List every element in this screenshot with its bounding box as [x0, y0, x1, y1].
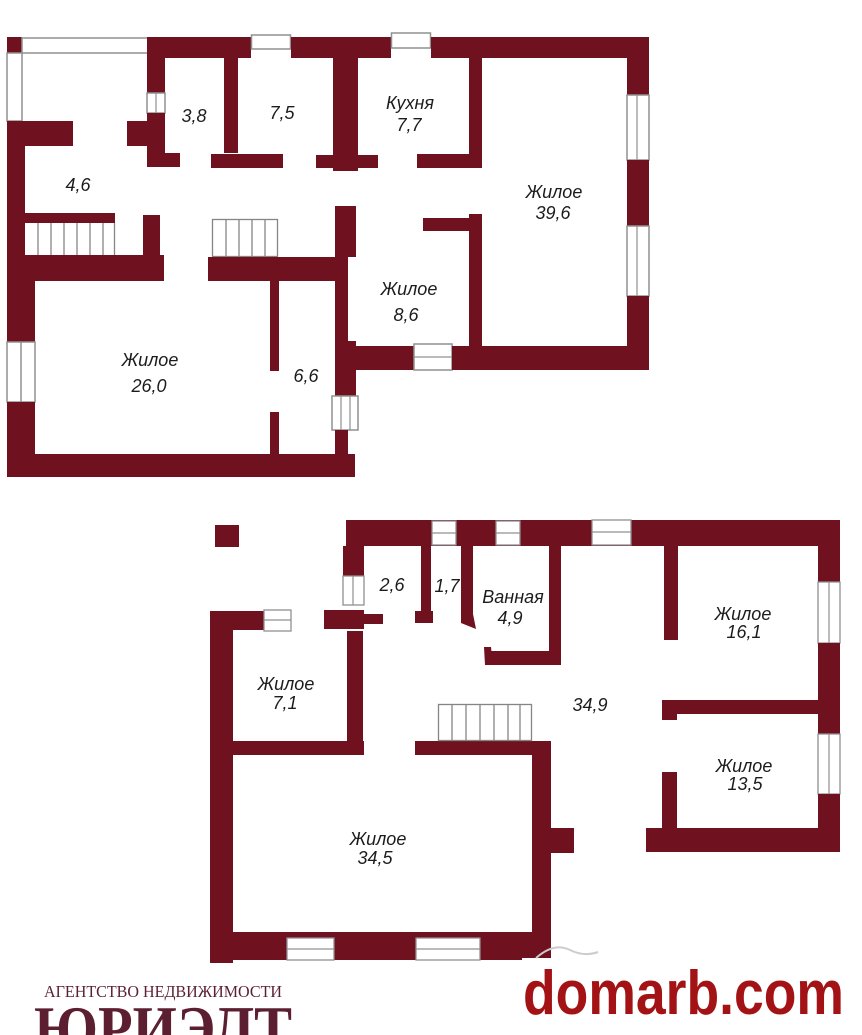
svg-text:Жилое: Жилое — [349, 829, 407, 849]
svg-text:domarb.com: domarb.com — [523, 959, 844, 1028]
svg-text:4,9: 4,9 — [497, 608, 522, 628]
svg-text:ЮРИЭЛТ: ЮРИЭЛТ — [34, 993, 292, 1035]
svg-text:26,0: 26,0 — [130, 376, 166, 396]
svg-text:6,6: 6,6 — [293, 366, 319, 386]
svg-text:8,6: 8,6 — [393, 305, 419, 325]
svg-text:4,6: 4,6 — [65, 175, 91, 195]
svg-text:7,7: 7,7 — [396, 115, 422, 135]
svg-text:39,6: 39,6 — [535, 203, 571, 223]
svg-text:34,9: 34,9 — [572, 695, 607, 715]
svg-text:Жилое: Жилое — [525, 182, 583, 202]
svg-text:34,5: 34,5 — [357, 848, 393, 868]
svg-text:7,1: 7,1 — [272, 693, 297, 713]
svg-text:7,5: 7,5 — [269, 103, 295, 123]
svg-text:Кухня: Кухня — [386, 93, 434, 113]
svg-text:Жилое: Жилое — [715, 756, 773, 776]
svg-text:2,6: 2,6 — [378, 575, 405, 595]
svg-text:Жилое: Жилое — [714, 604, 772, 624]
svg-text:13,5: 13,5 — [727, 774, 763, 794]
svg-text:3,8: 3,8 — [181, 106, 206, 126]
svg-text:Жилое: Жилое — [257, 674, 315, 694]
svg-text:Жилое: Жилое — [380, 279, 438, 299]
svg-text:16,1: 16,1 — [726, 622, 761, 642]
svg-text:1,7: 1,7 — [434, 576, 460, 596]
svg-text:Ванная: Ванная — [482, 587, 544, 607]
svg-text:Жилое: Жилое — [121, 350, 179, 370]
